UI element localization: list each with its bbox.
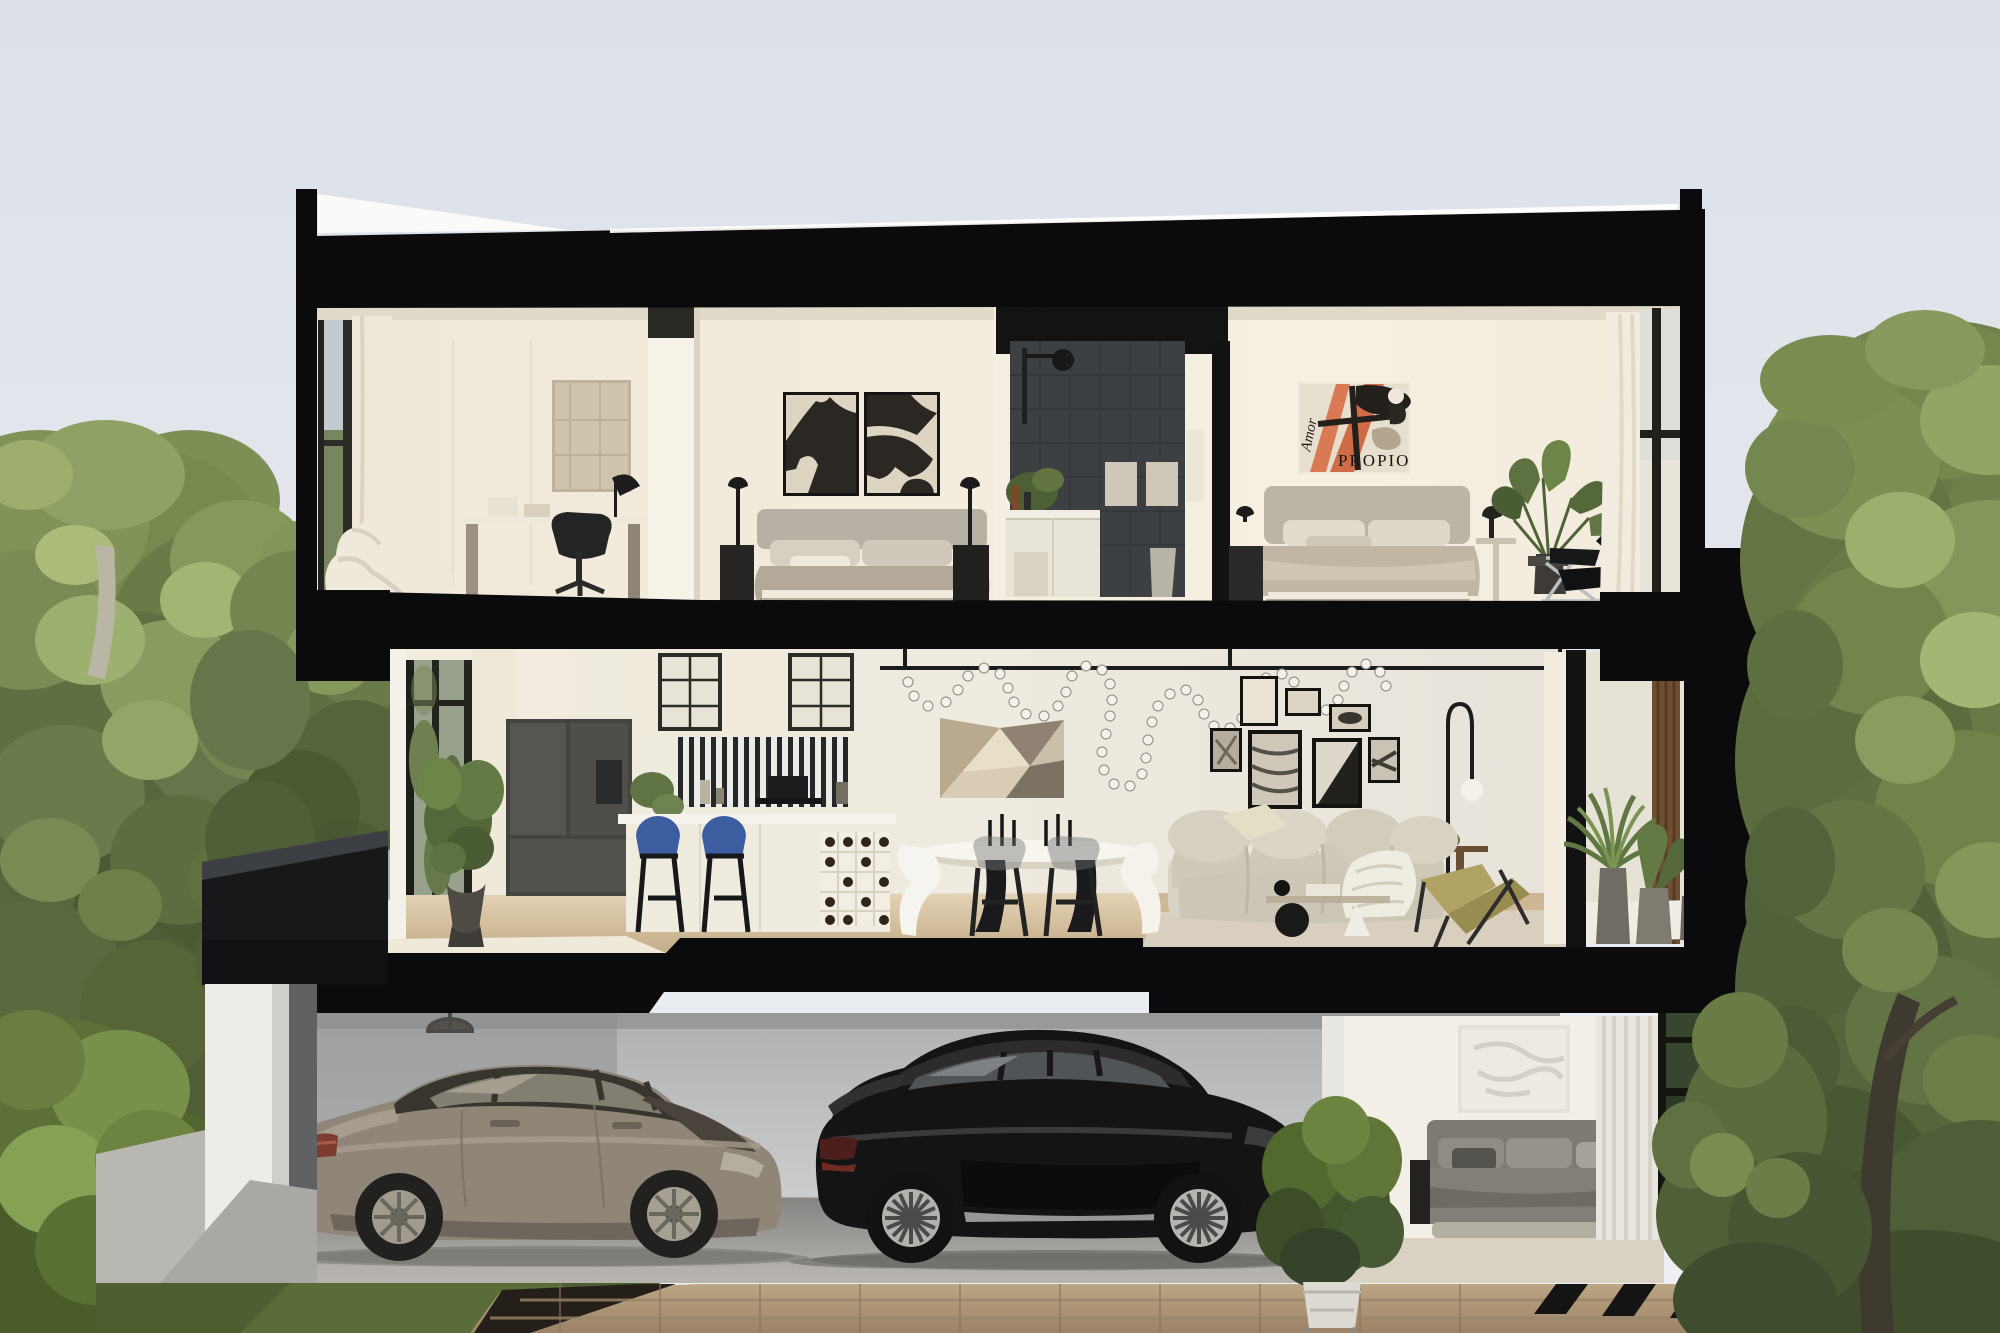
svg-text:PROPIO: PROPIO <box>1338 451 1410 470</box>
